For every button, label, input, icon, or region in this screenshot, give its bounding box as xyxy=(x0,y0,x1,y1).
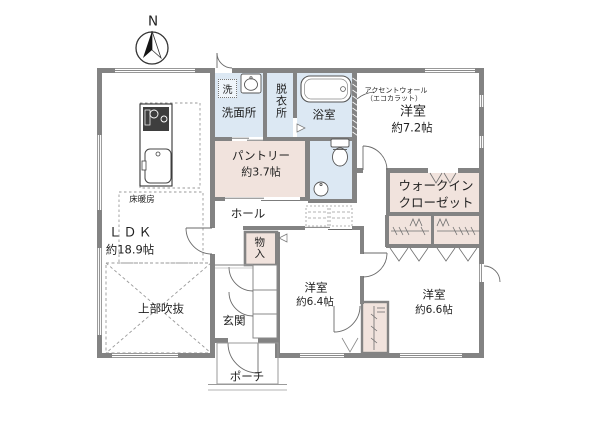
washer-label: 洗 xyxy=(223,81,233,96)
bedroom3-label: 洋室 xyxy=(423,289,446,301)
accent-wall-note-line2: （エコカラット） xyxy=(366,96,422,103)
washer-symbol: 洗 xyxy=(218,79,237,98)
wic-label-line1: ウォークイン xyxy=(398,180,473,193)
ldk-size: 約18.9帖 xyxy=(106,244,155,256)
pantry-size: 約3.7帖 xyxy=(241,167,281,178)
toilet-basin xyxy=(314,182,328,196)
floor-heating-label: 床暖房 xyxy=(129,196,155,205)
floor-plan: N 洗 洗面所 脱衣所 浴室 アクセントウォール （エコカラット） 洋室 約7.… xyxy=(0,0,600,424)
bedroom2-size: 約6.4帖 xyxy=(296,297,334,308)
wic-label-line2: クローゼット xyxy=(398,197,473,210)
bedroom1-label: 洋室 xyxy=(400,106,426,119)
dressing-label: 脱衣所 xyxy=(276,83,287,119)
storage-label: 物入 xyxy=(254,237,265,260)
ldk-label: ＬＤＫ xyxy=(108,227,153,240)
hall-dashed-marks xyxy=(306,206,352,226)
kitchen-island xyxy=(140,104,172,186)
entrance-label: 玄関 xyxy=(223,315,246,327)
bedroom3-size: 約6.6帖 xyxy=(415,305,453,316)
floor-plan-canvas xyxy=(0,0,600,424)
accent-wall-note-line1: アクセントウォール xyxy=(365,88,428,95)
void-label: 上部吹抜 xyxy=(138,303,184,315)
compass xyxy=(136,31,168,64)
bedroom2-label: 洋室 xyxy=(305,282,328,294)
compass-north-label: N xyxy=(148,15,158,29)
laundry-sink xyxy=(241,74,261,93)
pantry-label: パントリー xyxy=(232,150,290,162)
toilet xyxy=(331,139,349,166)
bedroom1-size: 約7.2帖 xyxy=(391,122,432,134)
laundry-label: 洗面所 xyxy=(222,107,257,119)
entrance-step xyxy=(215,265,253,268)
porch-label: ポーチ xyxy=(230,371,265,383)
hall-label: ホール xyxy=(231,208,266,220)
bathtub xyxy=(301,76,351,102)
bath-label: 浴室 xyxy=(313,109,336,121)
